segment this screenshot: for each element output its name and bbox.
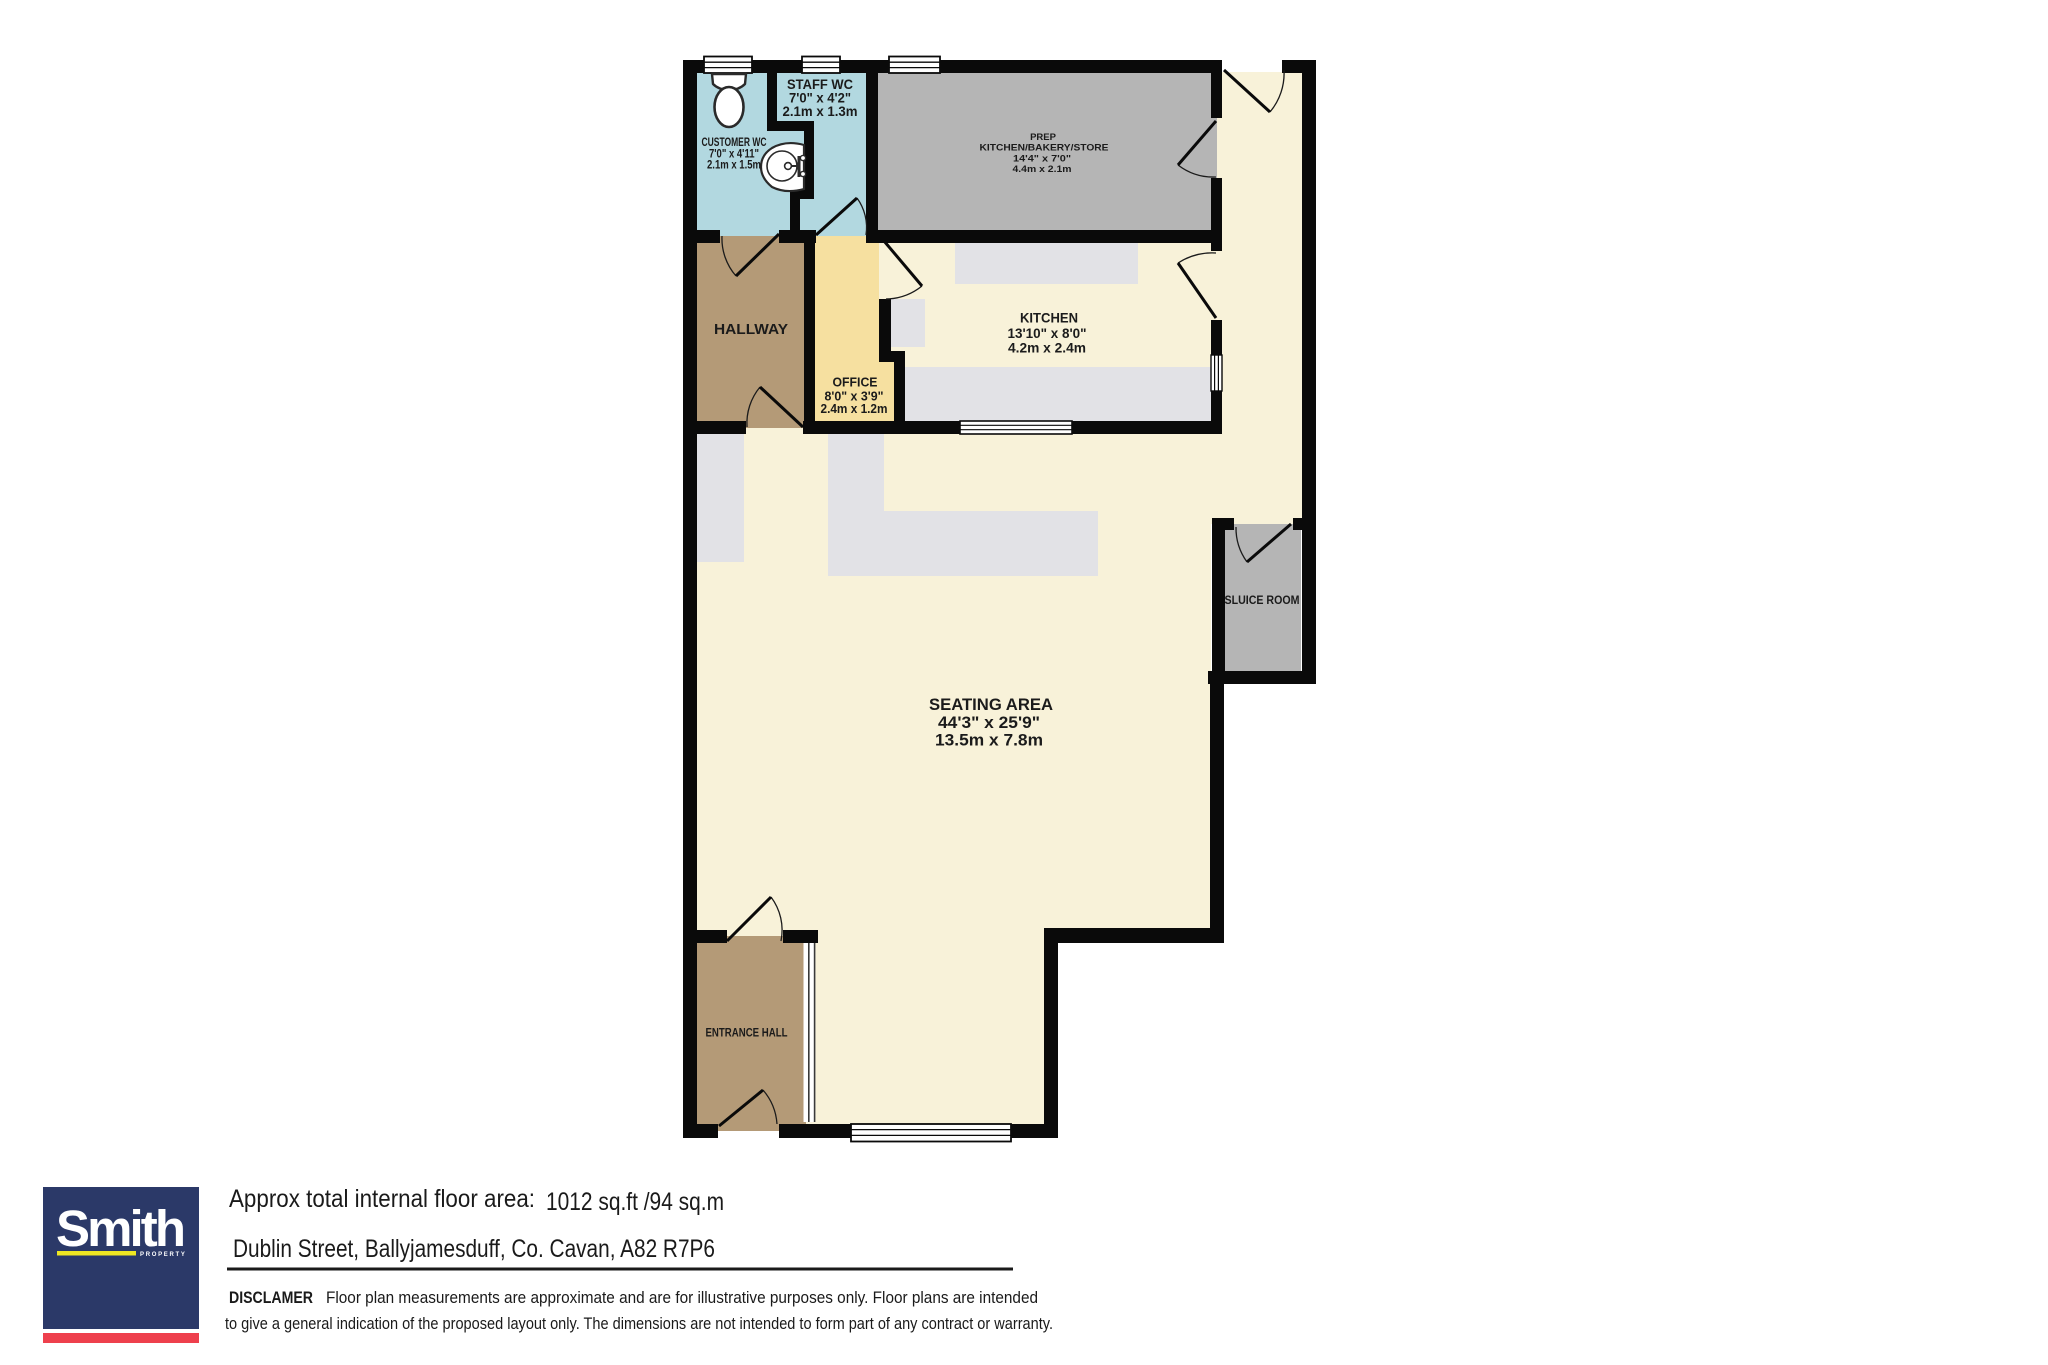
- svg-text:DISCLAMER: DISCLAMER: [229, 1289, 313, 1307]
- svg-text:2.1m x 1.5m: 2.1m x 1.5m: [707, 158, 761, 172]
- svg-text:2.4m x 1.2m: 2.4m x 1.2m: [821, 402, 888, 416]
- svg-text:1012 sq.ft /94 sq.m: 1012 sq.ft /94 sq.m: [546, 1188, 724, 1216]
- svg-text:14'4" x 7'0": 14'4" x 7'0": [1013, 154, 1071, 165]
- svg-text:OFFICE: OFFICE: [833, 376, 878, 390]
- svg-text:2.1m x 1.3m: 2.1m x 1.3m: [783, 103, 858, 119]
- svg-text:HALLWAY: HALLWAY: [714, 322, 788, 338]
- svg-text:to give a general indication o: to give a general indication of the prop…: [225, 1315, 1053, 1333]
- svg-text:Dublin Street, Ballyjamesduff,: Dublin Street, Ballyjamesduff, Co. Cavan…: [233, 1235, 715, 1263]
- svg-text:44'3" x 25'9": 44'3" x 25'9": [938, 713, 1040, 732]
- svg-text:4.4m x 2.1m: 4.4m x 2.1m: [1013, 164, 1072, 175]
- svg-text:KITCHEN/BAKERY/STORE: KITCHEN/BAKERY/STORE: [980, 142, 1109, 153]
- svg-text:Approx total internal floor ar: Approx total internal floor area:: [229, 1185, 535, 1213]
- svg-text:ENTRANCE HALL: ENTRANCE HALL: [706, 1028, 788, 1040]
- svg-text:PROPERTY: PROPERTY: [140, 1252, 187, 1258]
- svg-text:KITCHEN: KITCHEN: [1020, 310, 1078, 326]
- svg-text:Smith: Smith: [56, 1200, 186, 1257]
- svg-text:Floor plan measurements are ap: Floor plan measurements are approximate …: [326, 1289, 1038, 1307]
- svg-text:4.2m x 2.4m: 4.2m x 2.4m: [1008, 340, 1086, 356]
- svg-text:SEATING AREA: SEATING AREA: [929, 695, 1053, 714]
- svg-text:13.5m x 7.8m: 13.5m x 7.8m: [935, 731, 1043, 750]
- svg-text:SLUICE ROOM: SLUICE ROOM: [1225, 593, 1300, 607]
